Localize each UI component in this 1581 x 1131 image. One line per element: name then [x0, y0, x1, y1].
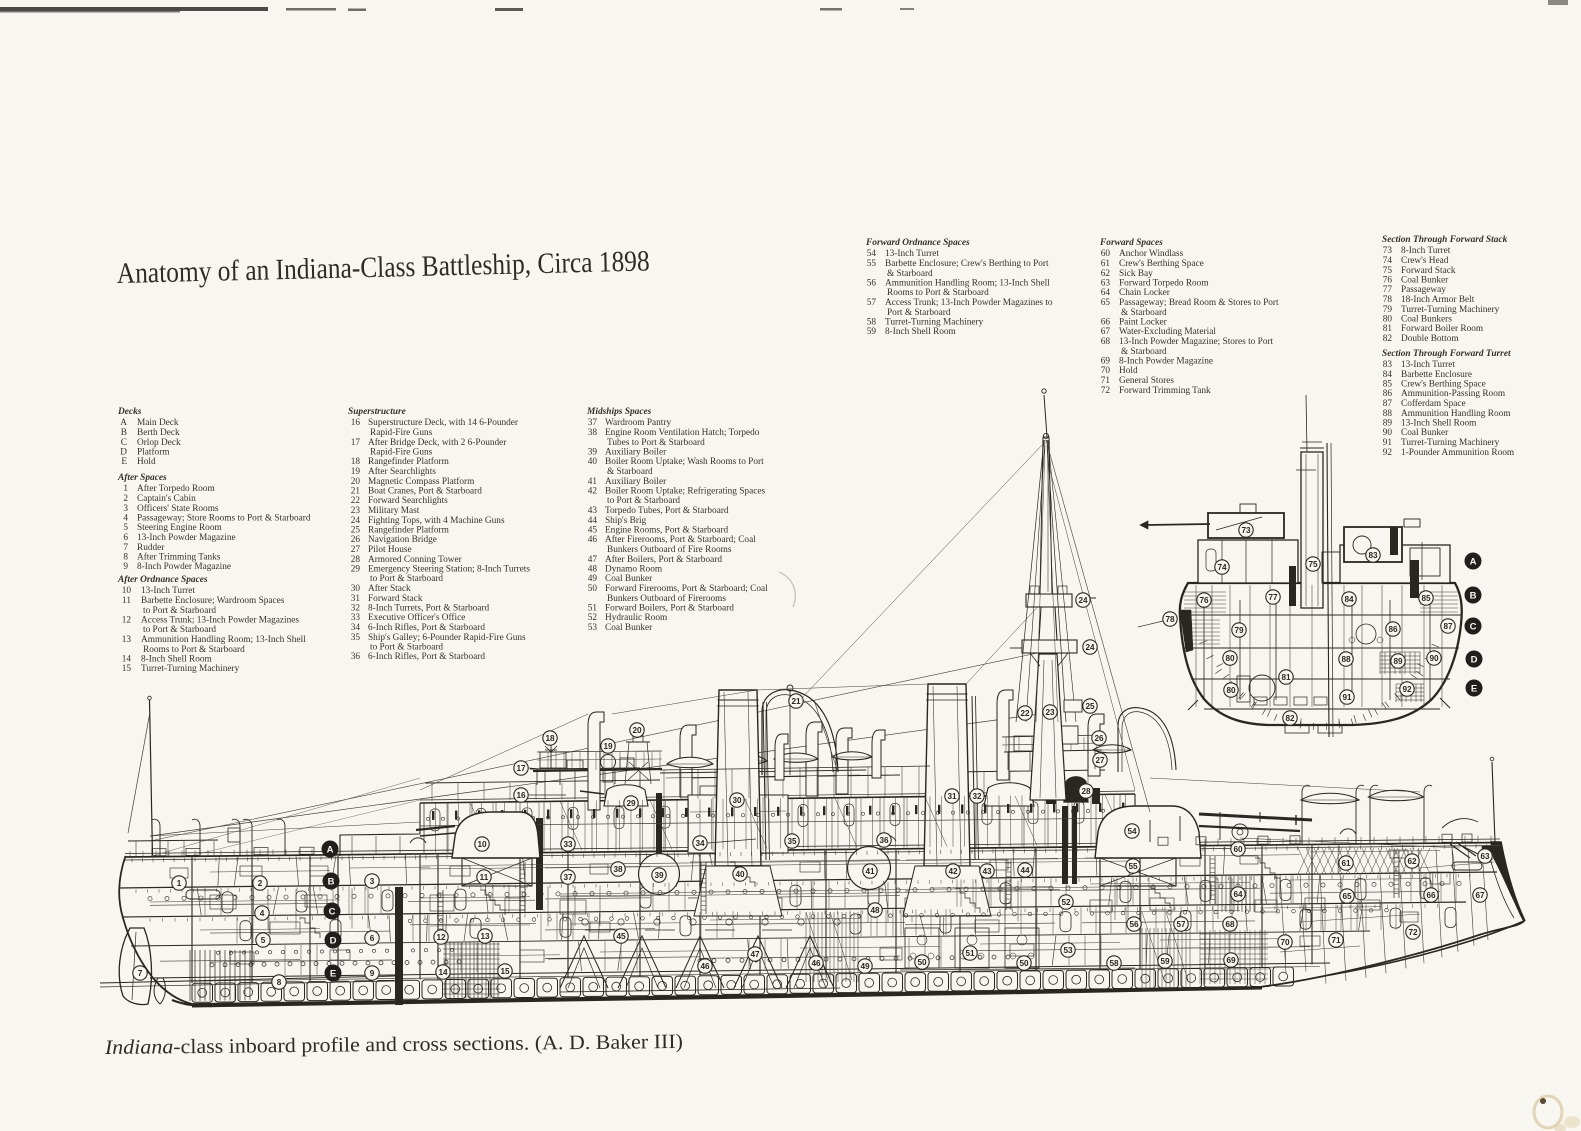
- svg-text:Forward Boiler Room: Forward Boiler Room: [1401, 324, 1484, 334]
- svg-text:13-Inch Powder Magazine; Store: 13-Inch Powder Magazine; Stores to Port: [1119, 337, 1274, 347]
- svg-text:Turret-Turning Machinery: Turret-Turning Machinery: [1401, 305, 1500, 315]
- svg-text:82: 82: [1383, 334, 1393, 344]
- svg-text:64: 64: [1233, 890, 1243, 899]
- svg-text:After Torpedo Room: After Torpedo Room: [137, 483, 215, 494]
- svg-text:D: D: [330, 935, 337, 946]
- svg-text:Forward Ordnance Spaces: Forward Ordnance Spaces: [865, 238, 970, 248]
- svg-text:67: 67: [1475, 891, 1485, 900]
- svg-text:& Starboard: & Starboard: [1121, 347, 1167, 357]
- svg-text:6-Inch Rifles, Port & Starboar: 6-Inch Rifles, Port & Starboard: [368, 651, 485, 662]
- svg-text:89: 89: [1393, 657, 1403, 666]
- svg-text:Section Through Forward Turret: Section Through Forward Turret: [1382, 349, 1511, 359]
- svg-text:40: 40: [588, 457, 598, 467]
- svg-text:2: 2: [123, 494, 128, 504]
- svg-text:9: 9: [370, 969, 375, 978]
- svg-text:89: 89: [1383, 419, 1393, 429]
- svg-text:58: 58: [867, 318, 877, 328]
- svg-text:Paint Locker: Paint Locker: [1119, 318, 1168, 328]
- svg-text:31: 31: [351, 594, 361, 604]
- svg-text:43: 43: [588, 506, 598, 516]
- svg-text:Magnetic Compass Platform: Magnetic Compass Platform: [368, 476, 475, 487]
- svg-text:to Port & Starboard: to Port & Starboard: [143, 606, 216, 616]
- svg-text:50: 50: [917, 958, 927, 967]
- svg-text:16: 16: [516, 791, 526, 800]
- svg-text:78: 78: [1383, 295, 1393, 305]
- svg-text:Forward Trimming Tank: Forward Trimming Tank: [1119, 386, 1211, 396]
- svg-text:Crew's Head: Crew's Head: [1401, 256, 1449, 266]
- svg-text:Berth Deck: Berth Deck: [137, 428, 180, 438]
- svg-text:Bunkers Outboard of Firerooms: Bunkers Outboard of Firerooms: [607, 593, 726, 604]
- svg-text:51: 51: [588, 604, 598, 614]
- svg-text:17: 17: [351, 438, 361, 448]
- svg-text:30: 30: [732, 796, 742, 805]
- svg-text:Turret-Turning Machinery: Turret-Turning Machinery: [1401, 438, 1500, 448]
- svg-text:1: 1: [123, 484, 128, 494]
- svg-text:8: 8: [123, 553, 128, 563]
- svg-text:25: 25: [1085, 702, 1095, 711]
- svg-text:70: 70: [1101, 366, 1111, 376]
- svg-text:38: 38: [588, 428, 598, 438]
- svg-text:26: 26: [1094, 734, 1104, 743]
- svg-text:36: 36: [351, 652, 361, 662]
- svg-text:Rapid-Fire Guns: Rapid-Fire Guns: [370, 448, 433, 458]
- svg-text:Hydraulic Room: Hydraulic Room: [605, 613, 668, 623]
- svg-text:Rudder: Rudder: [137, 543, 165, 553]
- svg-text:3: 3: [123, 504, 128, 514]
- svg-text:4: 4: [260, 909, 265, 918]
- svg-text:Captain's Cabin: Captain's Cabin: [137, 494, 196, 504]
- svg-text:59: 59: [1160, 957, 1170, 966]
- svg-text:& Starboard: & Starboard: [607, 467, 653, 477]
- svg-text:Boiler Room Uptake; Wash Rooms: Boiler Room Uptake; Wash Rooms to Port: [605, 457, 764, 467]
- svg-text:14: 14: [438, 968, 448, 977]
- svg-text:75: 75: [1308, 560, 1318, 569]
- svg-text:22: 22: [351, 496, 361, 506]
- svg-text:6: 6: [370, 934, 375, 943]
- svg-text:Access Trunk; 13-Inch Powder M: Access Trunk; 13-Inch Powder Magazines t…: [885, 298, 1053, 308]
- svg-text:51: 51: [965, 949, 975, 958]
- svg-text:6: 6: [123, 533, 128, 543]
- svg-text:Midships Spaces: Midships Spaces: [586, 407, 652, 417]
- svg-text:64: 64: [1101, 288, 1111, 298]
- svg-text:50: 50: [588, 584, 598, 594]
- svg-text:49: 49: [860, 962, 870, 971]
- svg-text:After Searchlights: After Searchlights: [368, 466, 436, 477]
- svg-text:92: 92: [1402, 685, 1412, 694]
- svg-text:Officers' State Rooms: Officers' State Rooms: [137, 503, 219, 514]
- svg-text:Orlop Deck: Orlop Deck: [137, 438, 181, 448]
- svg-text:62: 62: [1407, 857, 1417, 866]
- svg-text:General Stores: General Stores: [1119, 376, 1174, 386]
- svg-text:Forward Spaces: Forward Spaces: [1099, 238, 1163, 248]
- svg-text:61: 61: [1341, 859, 1351, 868]
- svg-text:37: 37: [563, 873, 573, 882]
- svg-text:56: 56: [1129, 920, 1139, 929]
- svg-text:31: 31: [947, 792, 957, 801]
- svg-text:66: 66: [1101, 318, 1111, 328]
- svg-text:1-Pounder Ammunition Room: 1-Pounder Ammunition Room: [1401, 448, 1515, 458]
- svg-text:C: C: [121, 438, 127, 448]
- svg-text:Bunkers Outboard of Fire Rooms: Bunkers Outboard of Fire Rooms: [607, 544, 732, 555]
- svg-text:5: 5: [261, 936, 266, 945]
- svg-text:63: 63: [1101, 279, 1111, 289]
- svg-text:53: 53: [588, 623, 598, 633]
- svg-text:68: 68: [1225, 920, 1235, 929]
- svg-text:Auxiliary Boiler: Auxiliary Boiler: [605, 448, 667, 458]
- svg-text:79: 79: [1234, 626, 1244, 635]
- svg-text:12: 12: [122, 616, 132, 626]
- svg-text:After Boilers, Port & Starboar: After Boilers, Port & Starboard: [605, 554, 722, 565]
- svg-text:90: 90: [1429, 654, 1439, 663]
- svg-text:70: 70: [1280, 938, 1290, 947]
- svg-text:42: 42: [588, 487, 598, 497]
- svg-text:Tubes to Port & Starboard: Tubes to Port & Starboard: [607, 438, 705, 448]
- svg-text:Rooms to Port & Starboard: Rooms to Port & Starboard: [887, 288, 989, 298]
- svg-text:62: 62: [1101, 269, 1111, 279]
- svg-text:Steering Engine Room: Steering Engine Room: [137, 523, 222, 533]
- svg-text:56: 56: [867, 279, 877, 289]
- svg-text:After Trimming Tanks: After Trimming Tanks: [137, 552, 221, 563]
- svg-text:58: 58: [1109, 959, 1119, 968]
- svg-text:54: 54: [867, 249, 877, 259]
- svg-text:A: A: [327, 844, 334, 855]
- svg-text:77: 77: [1383, 285, 1393, 295]
- svg-text:After Ordnance Spaces: After Ordnance Spaces: [117, 575, 208, 585]
- svg-text:& Starboard: & Starboard: [1121, 308, 1167, 318]
- svg-text:B: B: [1470, 590, 1477, 601]
- svg-text:24: 24: [1078, 596, 1088, 605]
- svg-text:24: 24: [351, 516, 361, 526]
- svg-text:A: A: [120, 418, 127, 428]
- svg-text:20: 20: [351, 477, 361, 487]
- svg-text:After Firerooms, Port & Starbo: After Firerooms, Port & Starboard; Coal: [605, 534, 756, 545]
- svg-text:28: 28: [351, 555, 361, 565]
- svg-text:84: 84: [1344, 595, 1354, 604]
- svg-text:61: 61: [1101, 259, 1111, 269]
- svg-text:72: 72: [1101, 386, 1111, 396]
- svg-text:Ammunition Handling Room; 13-I: Ammunition Handling Room; 13-Inch Shell: [885, 279, 1050, 289]
- svg-text:Turret-Turning Machinery: Turret-Turning Machinery: [885, 318, 984, 328]
- svg-text:Port & Starboard: Port & Starboard: [887, 308, 951, 318]
- svg-text:Ammunition-Passing Room: Ammunition-Passing Room: [1401, 389, 1506, 399]
- svg-text:20: 20: [632, 726, 642, 735]
- svg-text:to Port & Starboard: to Port & Starboard: [370, 574, 443, 584]
- svg-text:Coal Bunkers: Coal Bunkers: [1401, 315, 1452, 325]
- svg-text:Ammunition Handling Room; 13-I: Ammunition Handling Room; 13-Inch Shell: [141, 635, 306, 645]
- svg-text:86: 86: [1388, 625, 1398, 634]
- svg-text:82: 82: [1285, 714, 1295, 723]
- svg-text:27: 27: [1095, 756, 1105, 765]
- svg-text:77: 77: [1268, 593, 1278, 602]
- svg-text:29: 29: [351, 565, 361, 575]
- svg-text:53: 53: [1063, 946, 1073, 955]
- svg-text:Emergency Steering Station; 8-: Emergency Steering Station; 8-Inch Turre…: [368, 565, 530, 575]
- svg-text:Coal Bunker: Coal Bunker: [1401, 428, 1449, 438]
- svg-text:69: 69: [1226, 956, 1236, 965]
- svg-text:18: 18: [545, 734, 555, 743]
- svg-text:87: 87: [1443, 622, 1453, 631]
- svg-text:15: 15: [122, 664, 132, 674]
- svg-text:Access Trunk; 13-Inch Powder M: Access Trunk; 13-Inch Powder Magazines: [141, 616, 299, 626]
- svg-text:5: 5: [123, 523, 128, 533]
- svg-text:76: 76: [1199, 596, 1209, 605]
- svg-text:41: 41: [865, 867, 875, 876]
- svg-text:Crew's Berthing Space: Crew's Berthing Space: [1401, 380, 1486, 390]
- svg-text:13: 13: [122, 635, 132, 645]
- svg-text:63: 63: [1480, 852, 1490, 861]
- svg-text:35: 35: [787, 837, 797, 846]
- svg-text:46: 46: [811, 959, 821, 968]
- svg-text:49: 49: [588, 574, 598, 584]
- svg-text:8-Inch Powder Magazine: 8-Inch Powder Magazine: [1119, 357, 1213, 367]
- svg-text:Coal Bunker: Coal Bunker: [1401, 276, 1449, 286]
- svg-text:13-Inch Shell Room: 13-Inch Shell Room: [1401, 419, 1477, 429]
- svg-text:66: 66: [1426, 891, 1436, 900]
- svg-text:Rapid-Fire Guns: Rapid-Fire Guns: [370, 428, 433, 438]
- svg-text:Water-Excluding Material: Water-Excluding Material: [1119, 327, 1216, 337]
- svg-text:8-Inch Shell Room: 8-Inch Shell Room: [141, 655, 213, 665]
- svg-text:Forward Searchlights: Forward Searchlights: [368, 496, 448, 506]
- svg-text:57: 57: [1176, 920, 1186, 929]
- svg-text:38: 38: [613, 865, 623, 874]
- svg-text:Fighting Tops, with 4 Machine: Fighting Tops, with 4 Machine Guns: [368, 516, 505, 526]
- svg-text:Barbette Enclosure; Wardroom S: Barbette Enclosure; Wardroom Spaces: [141, 596, 285, 606]
- svg-text:88: 88: [1383, 409, 1393, 419]
- svg-text:Passageway; Store Rooms to Por: Passageway; Store Rooms to Port & Starbo…: [137, 514, 311, 524]
- svg-text:17: 17: [516, 764, 526, 773]
- svg-text:91: 91: [1383, 438, 1393, 448]
- svg-text:18-Inch Armor Belt: 18-Inch Armor Belt: [1401, 295, 1475, 305]
- svg-text:3: 3: [370, 877, 375, 886]
- svg-text:After Stack: After Stack: [368, 583, 411, 594]
- svg-text:19: 19: [603, 742, 613, 751]
- svg-text:Decks: Decks: [117, 407, 142, 417]
- svg-text:B: B: [121, 428, 127, 438]
- svg-text:Main Deck: Main Deck: [137, 418, 179, 428]
- svg-text:to Port & Starboard: to Port & Starboard: [143, 625, 216, 635]
- svg-text:68: 68: [1101, 337, 1111, 347]
- svg-text:73: 73: [1383, 246, 1393, 256]
- svg-text:Double Bottom: Double Bottom: [1401, 334, 1459, 344]
- svg-text:42: 42: [948, 867, 958, 876]
- svg-text:Barbette Enclosure; Crew's Ber: Barbette Enclosure; Crew's Berthing to P…: [885, 259, 1049, 269]
- svg-text:13-Inch Turret: 13-Inch Turret: [141, 586, 195, 596]
- svg-text:Rangefinder Platform: Rangefinder Platform: [368, 525, 450, 536]
- svg-text:16: 16: [351, 418, 361, 428]
- svg-text:Chain Locker: Chain Locker: [1119, 288, 1171, 298]
- svg-text:45: 45: [588, 526, 598, 536]
- svg-text:37: 37: [588, 418, 598, 428]
- svg-text:Passageway: Passageway: [1401, 285, 1446, 295]
- svg-text:18: 18: [351, 457, 361, 467]
- svg-text:Rangefinder Platform: Rangefinder Platform: [368, 456, 450, 467]
- svg-text:Dynamo Room: Dynamo Room: [605, 565, 663, 575]
- svg-text:Turret-Turning Machinery: Turret-Turning Machinery: [141, 664, 240, 674]
- svg-text:26: 26: [351, 535, 361, 545]
- svg-text:65: 65: [1342, 892, 1352, 901]
- svg-text:72: 72: [1408, 928, 1418, 937]
- svg-text:Executive Officer's Office: Executive Officer's Office: [368, 612, 465, 623]
- svg-text:Hold: Hold: [137, 457, 156, 467]
- svg-text:14: 14: [122, 655, 132, 665]
- svg-text:E: E: [1471, 683, 1477, 694]
- svg-text:D: D: [120, 448, 127, 458]
- svg-text:Platform: Platform: [137, 447, 170, 458]
- svg-text:Navigation Bridge: Navigation Bridge: [368, 535, 437, 545]
- svg-text:7: 7: [138, 969, 143, 978]
- svg-text:83: 83: [1368, 551, 1378, 560]
- svg-text:50: 50: [1019, 959, 1029, 968]
- svg-text:41: 41: [588, 477, 598, 487]
- svg-text:44: 44: [588, 516, 598, 526]
- svg-text:21: 21: [791, 697, 801, 706]
- svg-text:74: 74: [1217, 563, 1227, 572]
- svg-text:48: 48: [588, 565, 598, 575]
- svg-text:Forward Stack: Forward Stack: [1401, 266, 1456, 276]
- svg-text:47: 47: [750, 950, 760, 959]
- svg-text:1: 1: [177, 879, 182, 888]
- svg-text:Forward Stack: Forward Stack: [368, 594, 423, 604]
- svg-text:47: 47: [588, 555, 598, 565]
- svg-text:C: C: [329, 906, 336, 917]
- svg-text:35: 35: [351, 633, 361, 643]
- svg-text:32: 32: [351, 604, 361, 614]
- svg-text:78: 78: [1165, 615, 1175, 624]
- svg-text:Military Mast: Military Mast: [368, 506, 420, 516]
- svg-text:46: 46: [588, 535, 598, 545]
- svg-text:Barbette Enclosure: Barbette Enclosure: [1401, 370, 1472, 380]
- svg-text:4: 4: [123, 514, 128, 524]
- svg-text:Torpedo Tubes, Port & Starboar: Torpedo Tubes, Port & Starboard: [605, 506, 729, 516]
- svg-text:71: 71: [1331, 936, 1341, 945]
- svg-text:25: 25: [351, 526, 361, 536]
- svg-text:36: 36: [879, 836, 889, 845]
- svg-text:59: 59: [867, 327, 877, 337]
- svg-text:Auxiliary Boiler: Auxiliary Boiler: [605, 477, 667, 487]
- svg-text:Boiler Room Uptake; Refrigerat: Boiler Room Uptake; Refrigerating Spaces: [605, 486, 765, 497]
- svg-text:10: 10: [122, 586, 132, 596]
- svg-text:Anchor Windlass: Anchor Windlass: [1119, 249, 1184, 259]
- svg-text:6-Inch Rifles, Port & Starboar: 6-Inch Rifles, Port & Starboard: [368, 622, 485, 633]
- svg-text:Wardroom Pantry: Wardroom Pantry: [605, 418, 671, 428]
- svg-text:40: 40: [735, 870, 745, 879]
- svg-text:Forward Torpedo Room: Forward Torpedo Room: [1119, 279, 1209, 289]
- svg-text:80: 80: [1225, 654, 1235, 663]
- svg-text:Ship's Brig: Ship's Brig: [605, 516, 647, 526]
- svg-text:81: 81: [1281, 673, 1291, 682]
- svg-text:24: 24: [1085, 643, 1095, 652]
- svg-text:39: 39: [654, 871, 664, 880]
- svg-text:86: 86: [1383, 389, 1393, 399]
- svg-text:12: 12: [436, 933, 446, 942]
- svg-text:C: C: [1470, 621, 1477, 632]
- svg-text:8-Inch Turret: 8-Inch Turret: [1401, 246, 1451, 256]
- svg-text:73: 73: [1241, 526, 1251, 535]
- svg-text:Engine Rooms, Port & Starboard: Engine Rooms, Port & Starboard: [605, 526, 729, 536]
- svg-text:11: 11: [480, 873, 489, 882]
- svg-text:Ammunition Handling Room: Ammunition Handling Room: [1401, 409, 1511, 419]
- svg-text:19: 19: [351, 467, 361, 477]
- svg-text:88: 88: [1341, 655, 1351, 664]
- svg-text:Forward Boilers, Port & Starbo: Forward Boilers, Port & Starboard: [605, 604, 734, 614]
- svg-text:13-Inch Turret: 13-Inch Turret: [885, 249, 939, 259]
- svg-text:55: 55: [1128, 862, 1138, 871]
- svg-text:10: 10: [477, 840, 487, 849]
- svg-text:74: 74: [1383, 256, 1393, 266]
- svg-text:87: 87: [1383, 399, 1393, 409]
- svg-text:80: 80: [1383, 315, 1393, 325]
- svg-text:Superstructure: Superstructure: [348, 407, 406, 417]
- svg-text:Crew's Berthing Space: Crew's Berthing Space: [1119, 259, 1204, 269]
- svg-text:Superstructure Deck, with 14 6: Superstructure Deck, with 14 6-Pounder: [368, 418, 519, 428]
- svg-text:A: A: [1470, 556, 1477, 567]
- svg-text:Section Through Forward Stack: Section Through Forward Stack: [1382, 235, 1508, 245]
- svg-text:Engine Room Ventilation Hatch;: Engine Room Ventilation Hatch; Torpedo: [605, 428, 760, 438]
- svg-text:23: 23: [1045, 708, 1055, 717]
- svg-text:43: 43: [982, 867, 992, 876]
- svg-text:81: 81: [1383, 324, 1393, 334]
- svg-text:34: 34: [695, 839, 705, 848]
- svg-text:71: 71: [1101, 376, 1111, 386]
- svg-text:Armored Conning Tower: Armored Conning Tower: [368, 555, 463, 565]
- svg-text:22: 22: [1020, 709, 1030, 718]
- svg-text:21: 21: [351, 487, 361, 497]
- svg-text:33: 33: [563, 840, 573, 849]
- svg-text:57: 57: [867, 298, 877, 308]
- svg-text:84: 84: [1383, 370, 1393, 380]
- svg-text:92: 92: [1383, 448, 1393, 458]
- svg-text:60: 60: [1101, 249, 1111, 259]
- svg-text:B: B: [328, 876, 335, 887]
- svg-text:E: E: [121, 457, 127, 467]
- svg-text:67: 67: [1101, 327, 1111, 337]
- svg-text:45: 45: [616, 932, 626, 941]
- svg-text:After Bridge Deck, with 2 6-Po: After Bridge Deck, with 2 6-Pounder: [368, 437, 507, 448]
- svg-text:23: 23: [351, 506, 361, 516]
- svg-text:55: 55: [867, 259, 877, 269]
- svg-text:27: 27: [351, 545, 361, 555]
- svg-text:75: 75: [1383, 266, 1393, 276]
- svg-text:E: E: [330, 968, 336, 979]
- svg-text:Ship's Galley; 6-Pounder Rapid: Ship's Galley; 6-Pounder Rapid-Fire Guns: [368, 633, 526, 643]
- svg-text:85: 85: [1383, 380, 1393, 390]
- svg-text:11: 11: [122, 596, 131, 606]
- svg-text:13-Inch Turret: 13-Inch Turret: [1401, 360, 1455, 370]
- svg-text:85: 85: [1421, 594, 1431, 603]
- svg-text:15: 15: [500, 967, 510, 976]
- svg-text:30: 30: [351, 584, 361, 594]
- svg-text:8: 8: [277, 978, 282, 987]
- svg-text:48: 48: [870, 906, 880, 915]
- svg-text:60: 60: [1233, 845, 1243, 854]
- svg-text:90: 90: [1383, 428, 1393, 438]
- svg-text:29: 29: [626, 799, 636, 808]
- svg-text:52: 52: [588, 613, 598, 623]
- svg-text:7: 7: [123, 543, 128, 553]
- svg-text:34: 34: [351, 623, 361, 633]
- svg-text:80: 80: [1226, 686, 1236, 695]
- svg-text:54: 54: [1127, 827, 1137, 836]
- svg-text:52: 52: [1061, 898, 1071, 907]
- svg-text:Cofferdam Space: Cofferdam Space: [1401, 398, 1466, 409]
- svg-text:13: 13: [480, 932, 490, 941]
- svg-text:Sick Bay: Sick Bay: [1119, 269, 1153, 279]
- svg-text:8-Inch Powder Magazine: 8-Inch Powder Magazine: [137, 562, 231, 572]
- svg-text:to Port & Starboard: to Port & Starboard: [370, 643, 443, 653]
- svg-text:13-Inch Powder Magazine: 13-Inch Powder Magazine: [137, 533, 236, 543]
- svg-text:Passageway; Bread Room & Store: Passageway; Bread Room & Stores to Port: [1119, 298, 1279, 308]
- svg-text:Forward Firerooms, Port & Star: Forward Firerooms, Port & Starboard; Coa…: [605, 584, 768, 594]
